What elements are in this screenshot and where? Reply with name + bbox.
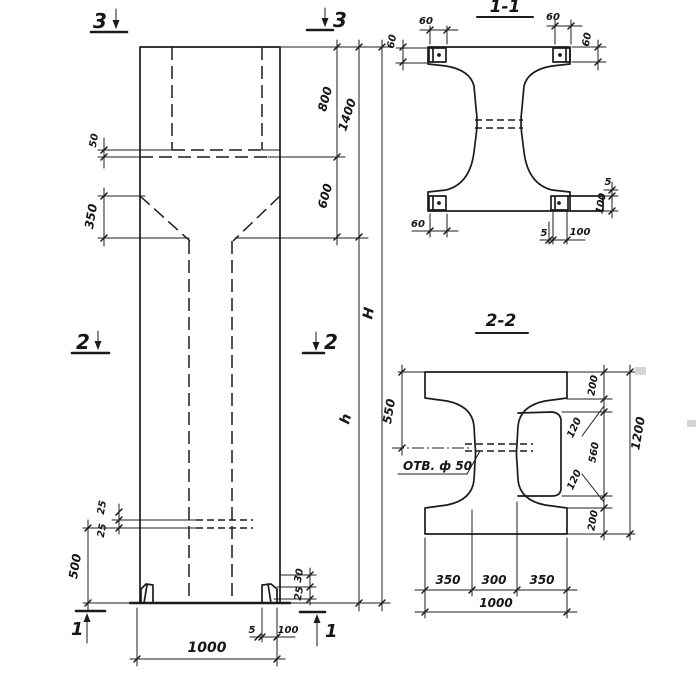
- dim-label-350-right: 350: [529, 573, 554, 587]
- marker-2-left-label: 2: [76, 330, 90, 354]
- dim-label-800: 800: [315, 85, 335, 113]
- dim-label-lug-5: 5: [249, 625, 256, 636]
- section-marker-1-right: 1: [300, 612, 338, 646]
- main-elevation-view: 50 350 25 25 500 800 600 1400 H h 30 25 …: [66, 8, 390, 666]
- arrow-up-icon: [314, 614, 321, 623]
- dim-label-5-bottom: 5: [541, 228, 548, 239]
- dowel-bars: [112, 520, 196, 528]
- dim-label-350-left: 350: [435, 573, 460, 587]
- taper-hidden-lines: [140, 196, 280, 241]
- dim-label-60-tl-v: 60: [386, 34, 399, 50]
- marker-3-right-label: 3: [333, 8, 347, 32]
- section-2-2-ticks: [399, 369, 633, 615]
- dim-label-550: 550: [380, 398, 398, 425]
- dim-label-120-top: 120: [565, 416, 584, 440]
- marker-1-right-label: 1: [325, 621, 338, 642]
- dim-label-60-tr-h: 60: [546, 12, 560, 23]
- section-2-2-title: 2-2: [486, 311, 517, 331]
- dim-label-lug-30: 30: [293, 568, 306, 584]
- anchor-dot: [558, 53, 562, 57]
- dim-label-taper-350: 350: [82, 203, 100, 230]
- engineering-drawing: 50 350 25 25 500 800 600 1400 H h 30 25 …: [0, 0, 700, 700]
- dim-label-bar-25-bottom: 25: [96, 523, 109, 539]
- arrow-down-icon: [313, 342, 320, 351]
- right-lug: [262, 584, 277, 603]
- section-marker-3-right: 3: [307, 8, 347, 32]
- dim-label-100-bottom: 100: [570, 227, 591, 238]
- dim-label-1000-bottom: 1000: [479, 596, 512, 610]
- section-1-1-view: 1-1 60 60 60 60 60 5 100 5 100: [386, 0, 618, 244]
- arrow-down-icon: [322, 18, 329, 27]
- marker-3-left-label: 3: [93, 9, 107, 33]
- dim-label-1400: 1400: [335, 97, 359, 133]
- section-marker-2-right: 2: [303, 330, 338, 354]
- dim-label-h: h: [337, 412, 355, 426]
- arrow-down-icon: [95, 341, 102, 350]
- arrow-down-icon: [113, 20, 120, 29]
- dim-label-H: H: [360, 306, 378, 321]
- ledge-lines: [98, 150, 345, 157]
- dim-label-300: 300: [481, 573, 506, 587]
- section-marker-2-left: 2: [72, 330, 109, 354]
- hole-callout: ОТВ. ф 50: [398, 451, 480, 474]
- dim-label-width-1000: 1000: [188, 640, 227, 656]
- web-hidden-lines: [189, 241, 232, 603]
- dim-label-lug-100: 100: [278, 625, 299, 636]
- dim-label-560: 560: [587, 441, 601, 464]
- dim-label-base-500: 500: [66, 553, 84, 580]
- dim-label-120-bottom: 120: [565, 468, 584, 492]
- left-lug: [141, 584, 153, 603]
- scan-artifact: [635, 367, 646, 375]
- dim-label-60-tr-v: 60: [581, 32, 594, 48]
- dim-ticks-main: [85, 44, 385, 662]
- hole-callout-label: ОТВ. ф 50: [403, 459, 472, 473]
- section-2-2-view: 2-2 ОТВ. ф 50 550 200 120 560 120 200 12…: [380, 311, 696, 618]
- section-marker-1-left: 1: [71, 611, 105, 643]
- section-marker-3-left: 3: [91, 9, 127, 33]
- anchor-dot: [437, 201, 441, 205]
- cap-cavity-hidden-lines: [140, 47, 268, 157]
- dim-label-60-bl: 60: [411, 219, 425, 230]
- dim-label-200-bottom: 200: [586, 509, 600, 532]
- dim-label-5-right: 5: [605, 177, 612, 188]
- marker-1-left-label: 1: [71, 619, 84, 640]
- dim-label-ledge-50: 50: [88, 133, 101, 149]
- section-2-2-ext-lines: [398, 365, 635, 618]
- anchor-dot: [437, 53, 441, 57]
- dim-lines-right: [235, 40, 390, 611]
- section-1-1-profile: [428, 47, 570, 211]
- marker-2-right-label: 2: [324, 330, 338, 354]
- dowel-bars-hidden: [196, 520, 253, 528]
- section-2-2-profile: [425, 372, 567, 534]
- arrow-up-icon: [84, 613, 91, 622]
- section-1-1-title: 1-1: [490, 0, 521, 17]
- dim-label-200-top: 200: [586, 374, 600, 397]
- drawing-sheet: 50 350 25 25 500 800 600 1400 H h 30 25 …: [0, 0, 700, 700]
- scan-artifact: [687, 420, 696, 427]
- dim-label-bar-25-top: 25: [96, 500, 109, 516]
- anchor-dot: [557, 201, 561, 205]
- void-contour: [518, 412, 561, 496]
- dim-label-1200: 1200: [628, 416, 648, 451]
- dim-label-60-tl-h: 60: [419, 16, 433, 27]
- section-1-1-web-hidden: [475, 120, 523, 128]
- lug-extension-lines: [137, 575, 316, 666]
- dim-label-600: 600: [315, 182, 335, 210]
